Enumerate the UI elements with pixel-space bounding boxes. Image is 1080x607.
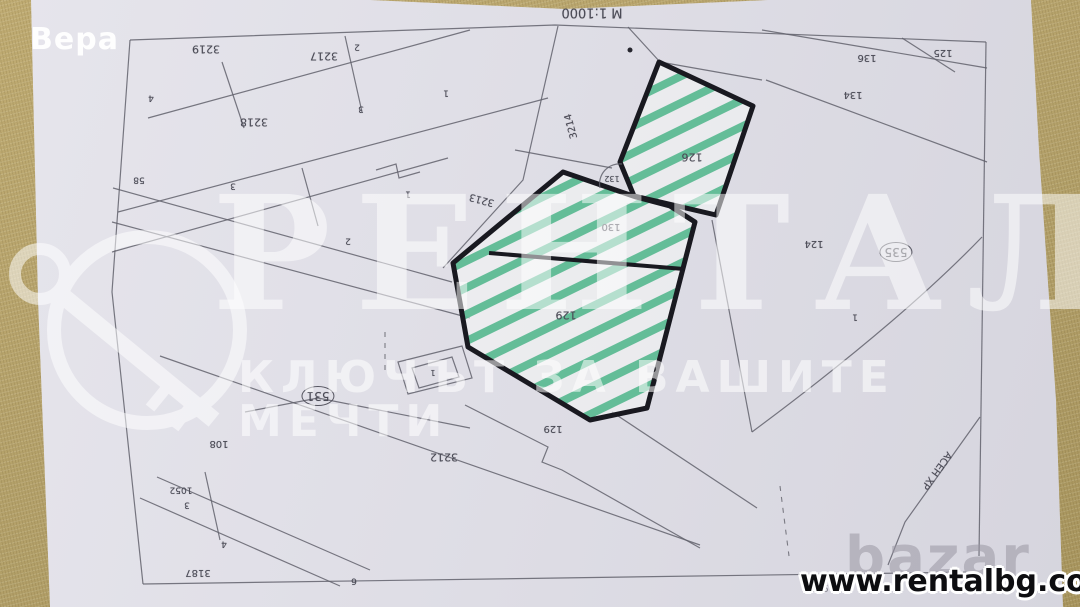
plot-number-label: 3218 [240,117,268,128]
scale-label: М 1:1000 [561,6,622,19]
plot-number-label: 1 [443,88,449,97]
site-url-label: www.rentalbg.com [800,564,1080,600]
plot-number-label: 3219 [192,44,220,55]
street-name-label: АСЕН ХР [919,449,953,490]
plot-number-label: 58 [133,175,144,184]
listing-photo-cadastral-map: { "photo_label": "Вера", "map": { "scale… [0,0,1080,607]
watermark-tagline-text: КЛЮЧЪТ ЗА ВАШИТЕ МЕЧТИ [238,356,1080,444]
plot-number-label: 3 [184,500,190,509]
highlighted-plot-126-label: 126 [682,152,703,163]
plot-number-label: 3217 [310,51,338,62]
plot-number-label: 134 [843,89,862,99]
plot-number-label: 4 [148,93,154,102]
watermark-brand-text: РЕНТАЛ [212,176,1080,334]
plot-number-label: 3214 [564,112,580,139]
plot-number-label: 3 [358,104,364,113]
plot-number-label: 3187 [185,567,210,577]
plot-number-label: 3212 [430,452,458,463]
plot-number-label: 1052 [170,485,193,494]
plot-number-label: 2 [354,42,360,51]
plot-number-label: 6 [351,576,357,585]
photo-title-label: Вера [30,22,119,57]
plot-number-label: 4 [221,539,227,548]
plot-number-label: 125 [933,47,952,57]
plot-number-label: 136 [857,52,876,62]
